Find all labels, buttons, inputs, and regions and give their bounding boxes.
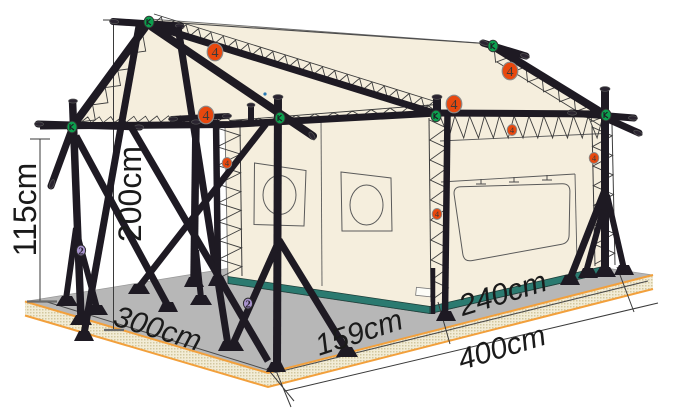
svg-text:4: 4 bbox=[203, 109, 210, 124]
svg-text:2: 2 bbox=[78, 245, 84, 257]
svg-text:2: 2 bbox=[245, 298, 251, 310]
svg-text:200cm: 200cm bbox=[112, 146, 148, 242]
svg-text:4: 4 bbox=[451, 98, 458, 113]
svg-text:4: 4 bbox=[212, 46, 219, 61]
svg-text:4: 4 bbox=[507, 65, 514, 80]
svg-text:115cm: 115cm bbox=[7, 163, 43, 257]
